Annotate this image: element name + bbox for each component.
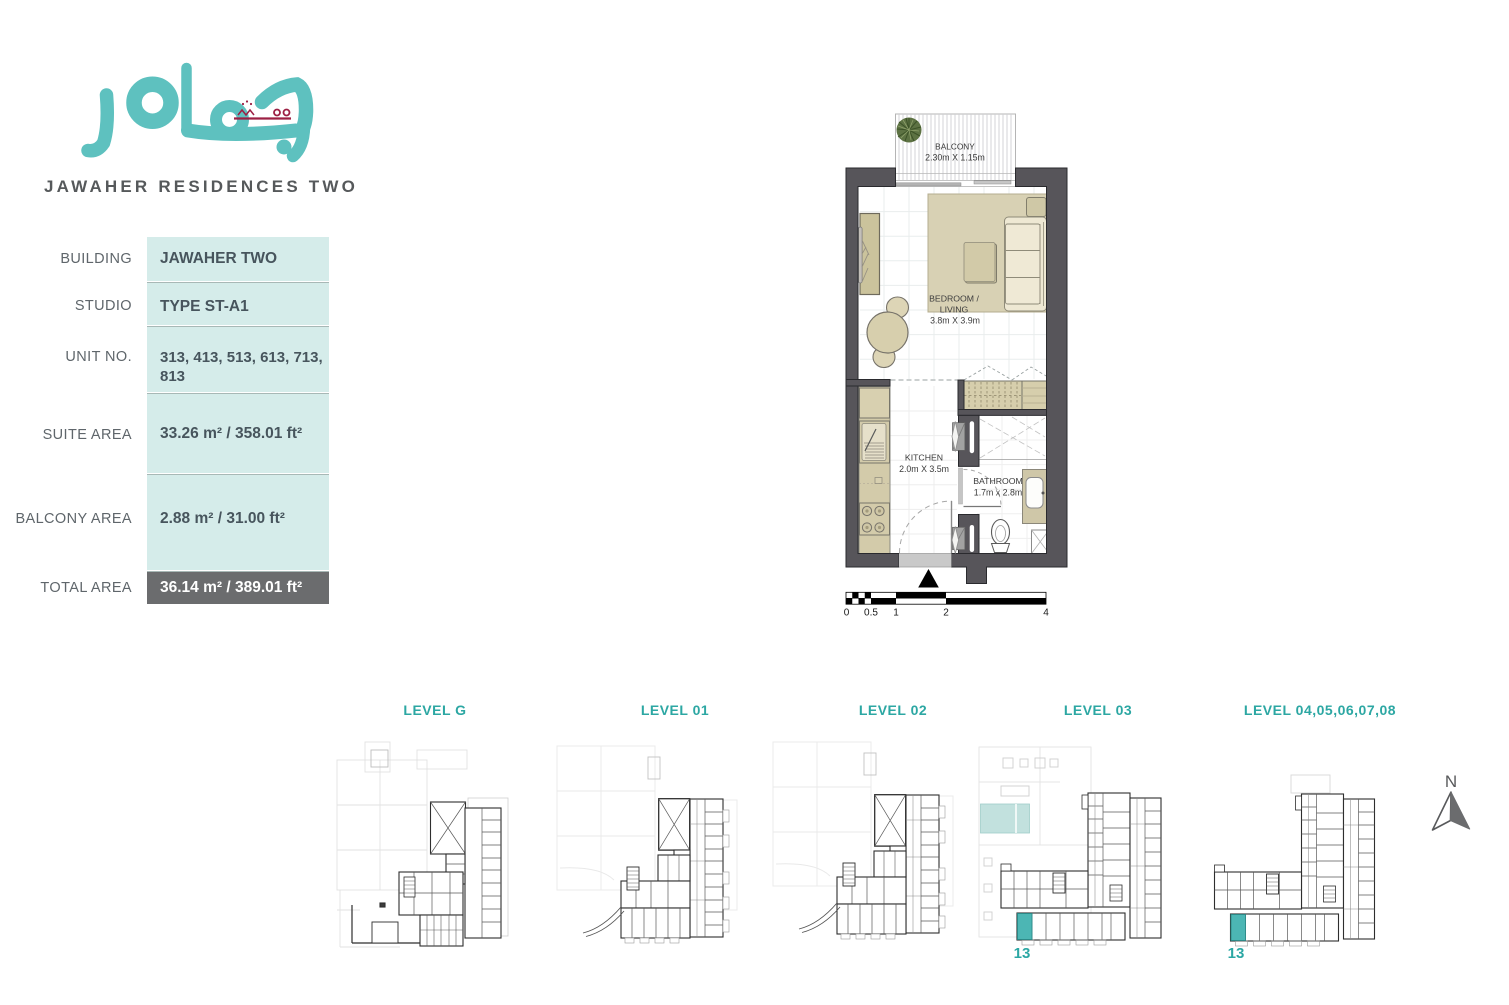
svg-text:2.30m X 1.15m: 2.30m X 1.15m (925, 153, 985, 163)
svg-text:BALCONY: BALCONY (935, 142, 975, 152)
svg-text:N: N (1445, 772, 1457, 791)
svg-text:13: 13 (1228, 945, 1245, 962)
svg-text:BATHROOM: BATHROOM (973, 476, 1023, 486)
svg-text:3.8m X 3.9m: 3.8m X 3.9m (930, 316, 980, 326)
svg-text:0: 0 (844, 608, 850, 619)
svg-text:4: 4 (1043, 608, 1049, 619)
svg-text:KITCHEN: KITCHEN (905, 453, 943, 463)
svg-text:0.5: 0.5 (864, 608, 878, 619)
svg-text:LIVING: LIVING (940, 305, 969, 315)
svg-text:1.7m x 2.8m: 1.7m x 2.8m (974, 488, 1022, 498)
svg-text:2.0m X 3.5m: 2.0m X 3.5m (899, 464, 949, 474)
svg-text:2: 2 (943, 608, 949, 619)
svg-text:13: 13 (1014, 945, 1031, 962)
svg-text:BEDROOM /: BEDROOM / (929, 294, 979, 304)
svg-text:1: 1 (893, 608, 899, 619)
